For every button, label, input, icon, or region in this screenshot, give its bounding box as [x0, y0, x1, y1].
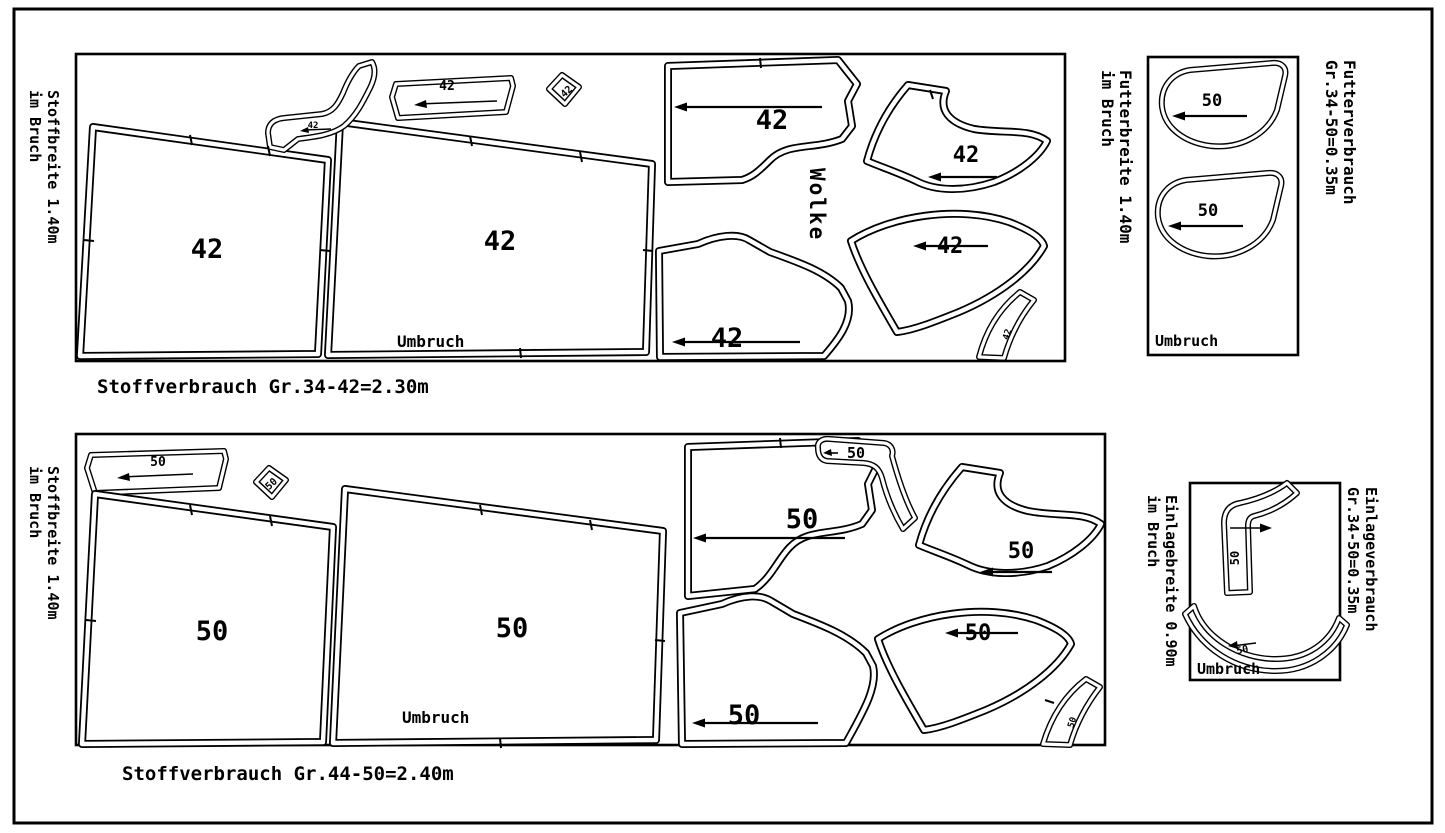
size-label-bodice-front-42: 42	[711, 323, 744, 354]
size-label-lining-pocket-2: 50	[1198, 201, 1218, 221]
size-label-skirt-a-50: 50	[196, 616, 229, 647]
size-label-lining-pocket-1: 50	[1202, 91, 1222, 111]
interfacing-usage-label-line2: Gr.34-50=0.35m	[1344, 487, 1362, 613]
lining-panel: 50 50 Umbruch Futterbreite 1.40m im Bruc…	[1098, 57, 1359, 355]
fold-line-label-lining: Umbruch	[1155, 332, 1218, 350]
size-label-belt-42: 42	[439, 79, 455, 94]
fold-line-label-42: Umbruch	[397, 332, 464, 351]
fabric-panel-size-50: 50 50 50 50 50 50 50 50 50 50 Umbruch St…	[26, 434, 1105, 785]
lining-usage-label-line2: Gr.34-50=0.35m	[1322, 60, 1341, 195]
piece-interfacing-corner-band	[1224, 483, 1297, 593]
interfacing-width-label-line2: im Bruch	[1144, 495, 1162, 567]
fold-line-label-50: Umbruch	[402, 708, 469, 727]
lining-width-label-line2: im Bruch	[1098, 70, 1117, 147]
size-label-belt-50: 50	[150, 455, 166, 470]
piece-bodice-front-50	[680, 596, 874, 744]
size-label-bodice-back-50: 50	[786, 504, 819, 535]
pattern-cutting-layout-svg: 42 42 42 42 42 42 42 42 42 42 Umbruch Wo…	[0, 0, 1445, 833]
fabric-width-label-50-line2: im Bruch	[26, 466, 44, 538]
size-label-skirt-a-42: 42	[191, 234, 224, 265]
size-label-bodice-back-42: 42	[756, 105, 789, 136]
fabric-width-label-42-line2: im Bruch	[26, 90, 44, 162]
size-label-sleeve-upper-42: 42	[953, 143, 980, 168]
model-name-label: Wolke	[805, 168, 829, 241]
fold-line-label-interfacing: Umbruch	[1197, 660, 1260, 678]
interfacing-panel: 50 50 Umbruch Einlagebreite 0.90m im Bru…	[1144, 483, 1380, 680]
size-label-skirt-b-42: 42	[484, 226, 517, 257]
interfacing-width-label-line1: Einlagebreite 0.90m	[1162, 495, 1180, 667]
size-label-bodice-front-50: 50	[728, 700, 761, 731]
fabric-panel-size-42: 42 42 42 42 42 42 42 42 42 42 Umbruch Wo…	[26, 54, 1065, 398]
lining-width-label-line1: Futterbreite 1.40m	[1116, 70, 1135, 244]
size-label-waistband-42: 42	[308, 121, 319, 131]
fabric-usage-caption-42: Stoffverbrauch Gr.34-42=2.30m	[97, 376, 429, 398]
interfacing-usage-label-line1: Einlageverbrauch	[1362, 487, 1380, 632]
fabric-usage-caption-50: Stoffverbrauch Gr.44-50=2.40m	[122, 763, 454, 785]
fabric-width-label-50-line1: Stoffbreite 1.40m	[44, 466, 62, 620]
size-label-interfacing-corner: 50	[1228, 551, 1242, 565]
lining-usage-label-line1: Futterverbrauch	[1340, 60, 1359, 205]
size-label-sleeve-lower-50: 50	[965, 621, 992, 646]
size-label-sleeve-upper-50: 50	[1008, 539, 1035, 564]
cutting-layout-page: 42 42 42 42 42 42 42 42 42 42 Umbruch Wo…	[0, 0, 1445, 833]
fabric-width-label-42-line1: Stoffbreite 1.40m	[44, 90, 62, 244]
size-label-sleeve-lower-42: 42	[937, 234, 964, 259]
size-label-skirt-b-50: 50	[496, 613, 529, 644]
piece-bodice-front-42	[659, 236, 849, 357]
size-label-facing-hook-50: 50	[847, 444, 865, 462]
